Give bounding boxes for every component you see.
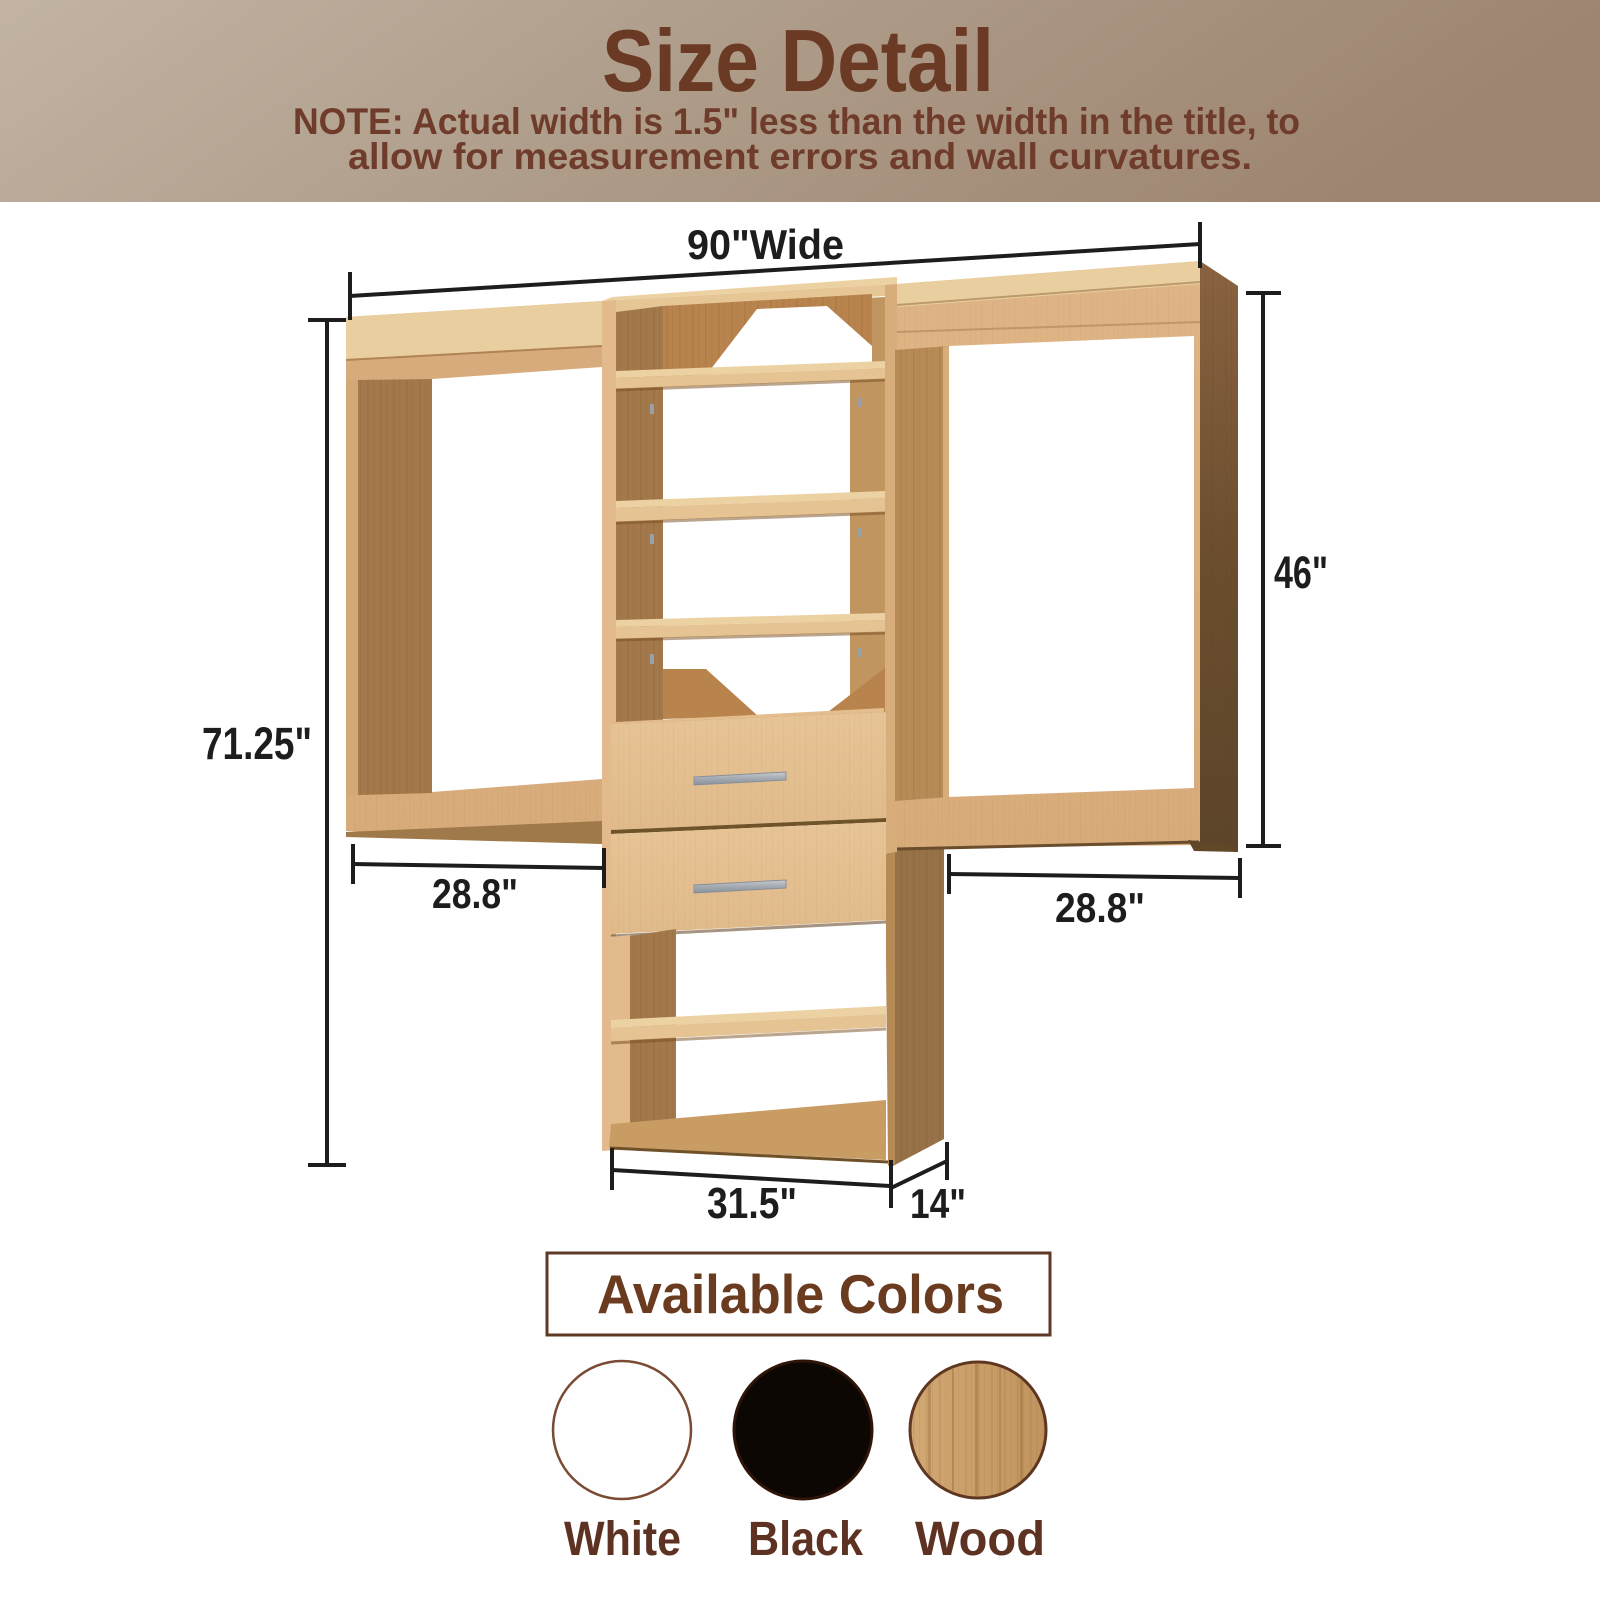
svg-text:90"Wide: 90"Wide: [687, 221, 844, 268]
svg-text:Available Colors: Available Colors: [597, 1263, 1004, 1325]
svg-text:31.5": 31.5": [707, 1179, 797, 1228]
svg-text:White: White: [564, 1513, 681, 1566]
svg-text:28.8": 28.8": [1055, 884, 1145, 931]
svg-text:28.8": 28.8": [432, 870, 518, 917]
svg-text:46": 46": [1274, 547, 1328, 598]
svg-text:Wood: Wood: [915, 1513, 1045, 1566]
svg-text:Size Detail: Size Detail: [602, 11, 994, 110]
svg-text:14": 14": [910, 1180, 966, 1227]
svg-text:71.25": 71.25": [202, 718, 312, 769]
svg-text:Black: Black: [748, 1513, 863, 1566]
svg-text:allow for measurement errors a: allow for measurement errors and wall cu…: [348, 136, 1252, 177]
